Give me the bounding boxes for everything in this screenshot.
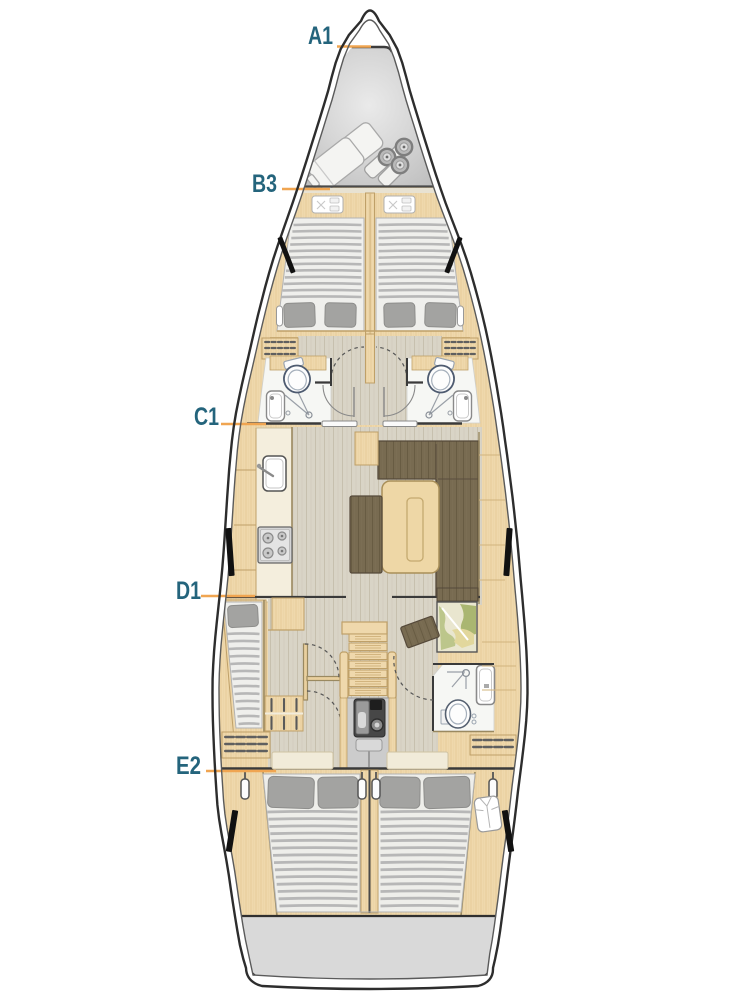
svg-text:B3: B3 — [252, 170, 277, 198]
svg-text:E2: E2 — [176, 752, 201, 780]
svg-text:C1: C1 — [194, 403, 219, 431]
svg-text:D1: D1 — [176, 577, 201, 605]
svg-text:A1: A1 — [308, 22, 333, 50]
